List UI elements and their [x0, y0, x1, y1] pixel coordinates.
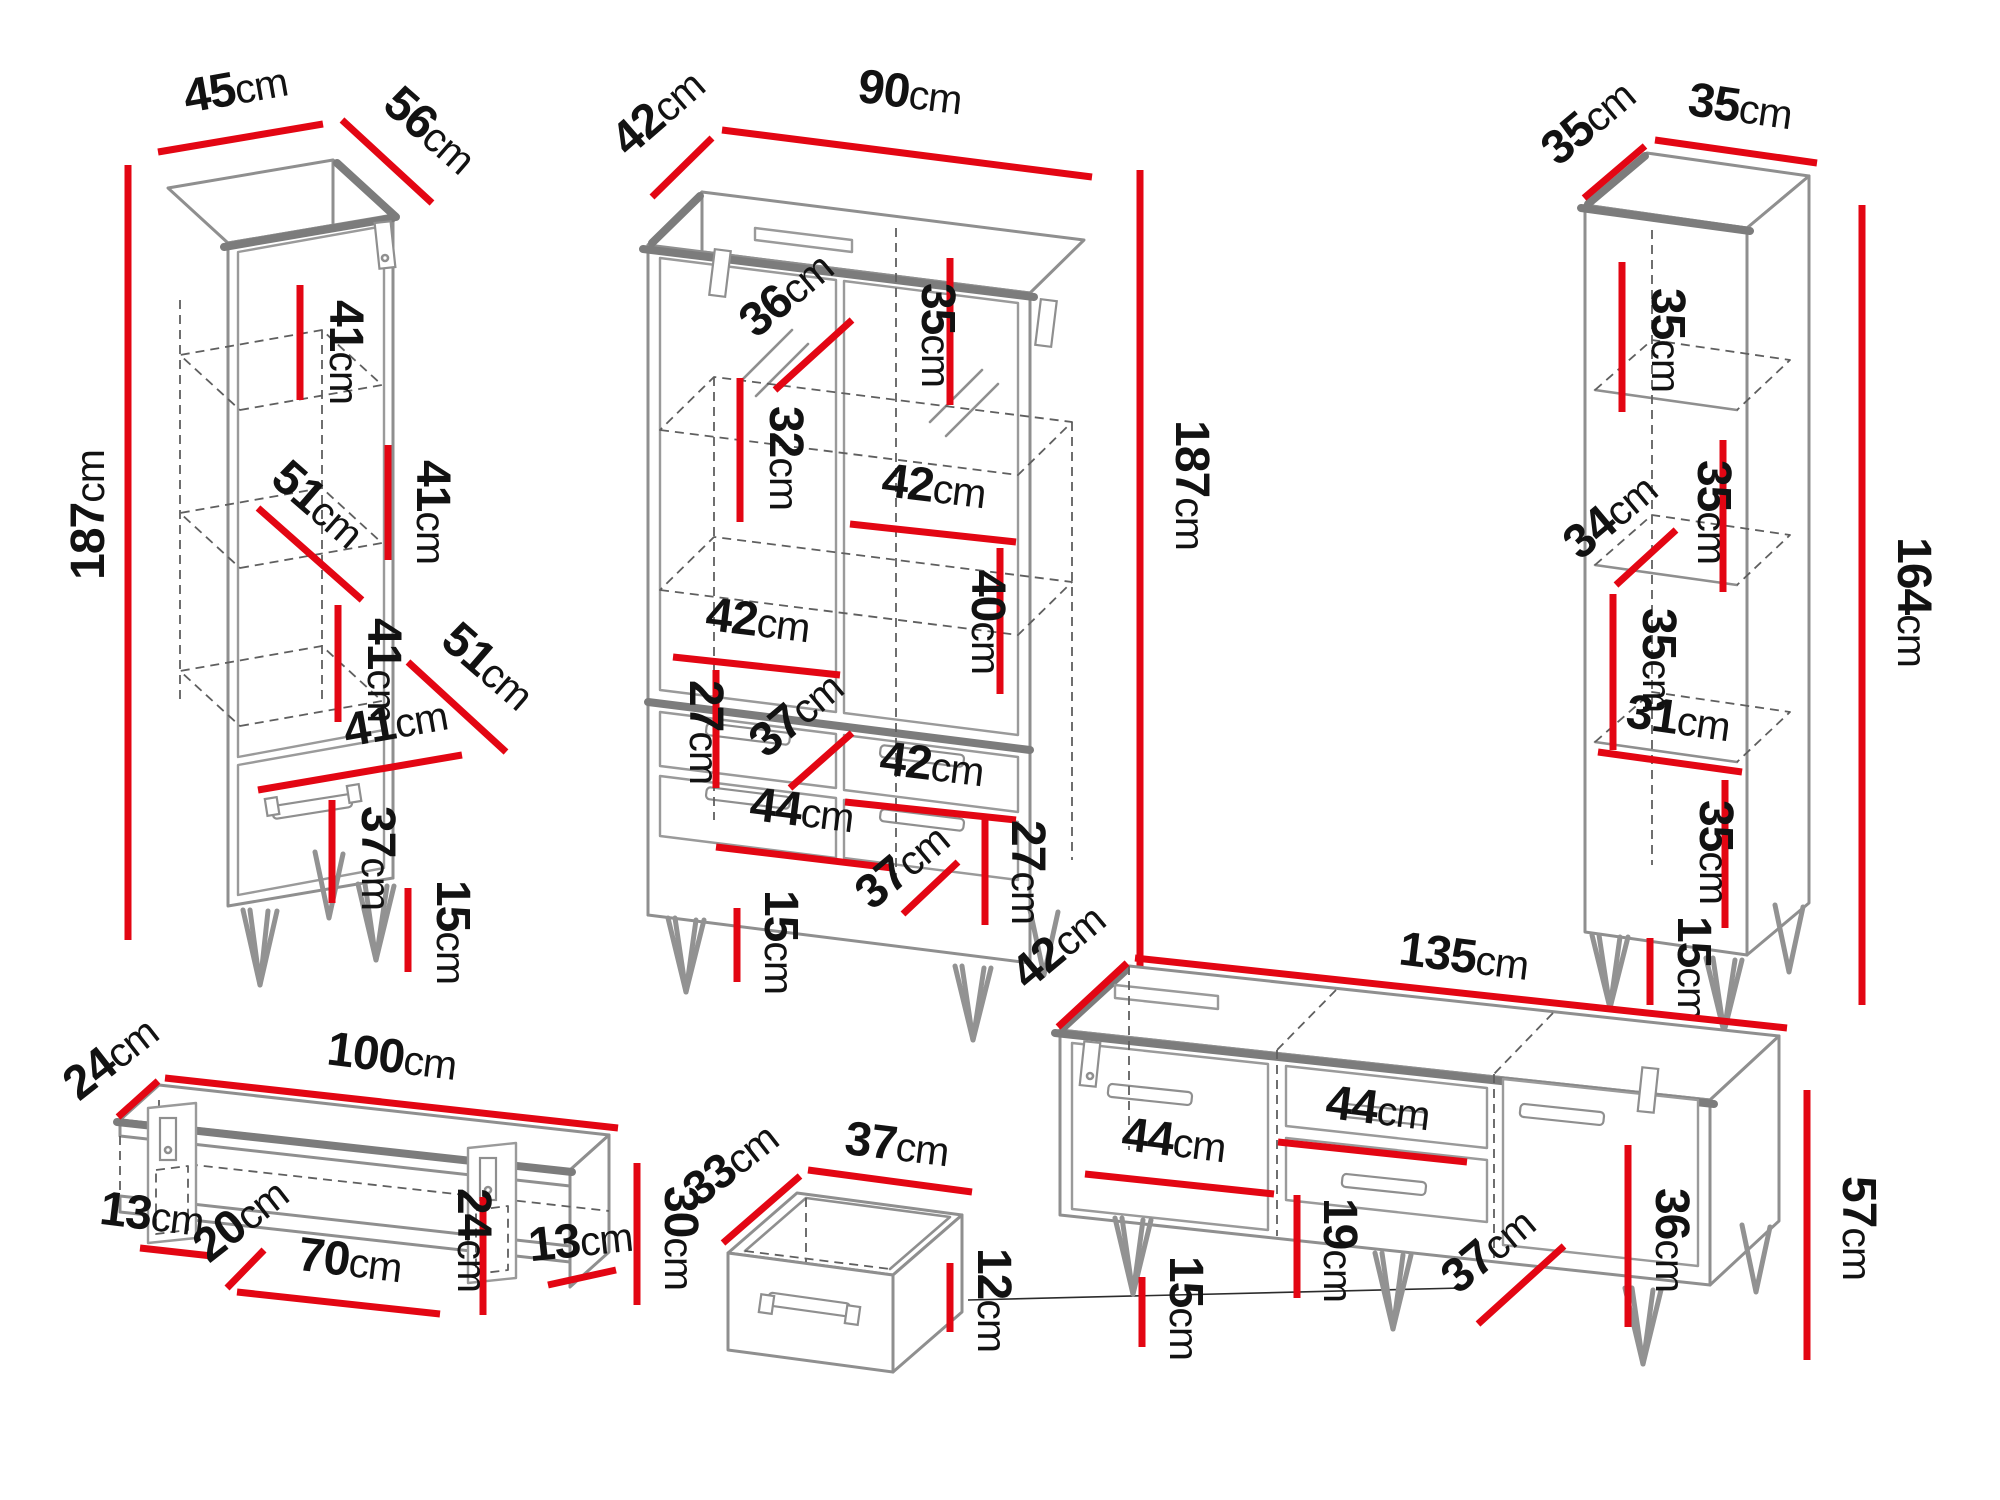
dim-comp4-label: 35cm [1689, 800, 1742, 904]
dim-width-line [158, 124, 323, 152]
hinge-bracket [375, 221, 396, 268]
display-cabinet: 42cm 90cm 187cm 36cm 35cm 32cm 42cm 40cm… [601, 58, 1218, 1040]
dim-legs-label: 15cm [426, 880, 479, 984]
shelf-unit: 35cm 35cm 164cm 35cm 34cm 35cm 35cm 31cm… [1531, 68, 1940, 1032]
diagram-canvas: 45cm 56cm 187cm 41cm 41cm 51cm 41cm 51cm… [0, 0, 2000, 1500]
dim-door-height-label: 40cm [961, 570, 1014, 674]
dim-height-label: 12cm [967, 1248, 1020, 1352]
wall-shelf: 24cm 100cm 13cm 20cm 70cm 24cm 13cm 30cm [53, 1005, 707, 1315]
dim-side-height-label: 36cm [1645, 1188, 1698, 1292]
dim-comp1-label: 41cm [319, 300, 372, 404]
dim-legs-label: 15cm [1667, 916, 1720, 1020]
dim-comp2-label: 35cm [1687, 460, 1740, 564]
dim-shelf-left-label: 32cm [759, 406, 812, 510]
tall-cabinet: 45cm 56cm 187cm 41cm 41cm 51cm 41cm 51cm… [62, 54, 545, 985]
dim-drawer-height-label: 19cm [1313, 1198, 1366, 1302]
dim-width-line [808, 1170, 972, 1192]
dim-width-label: 35cm [1685, 73, 1795, 140]
dim-width-line [722, 130, 1092, 177]
dim-height-label: 187cm [62, 450, 115, 580]
dim-width-label: 100cm [324, 1022, 459, 1090]
dim-shelf-right-label: 35cm [911, 283, 964, 387]
dim-drawer-right-label: 27cm [1001, 820, 1054, 924]
dim-inner-height-label: 24cm [447, 1188, 500, 1292]
dim-height-label: 164cm [1887, 537, 1940, 667]
dim-width-label: 37cm [842, 1112, 952, 1177]
dim-inner-width-line [237, 1292, 440, 1314]
dim-height-label: 57cm [1832, 1176, 1885, 1280]
dim-shelf-diag2-label: 51cm [432, 612, 545, 720]
dim-width-label: 45cm [179, 54, 291, 124]
dim-legs-label: 15cm [1159, 1256, 1212, 1360]
dim-legs-label: 15cm [754, 890, 807, 994]
dim-comp2-label: 41cm [406, 460, 459, 564]
tv-stand: 42cm 135cm 44cm 44cm 19cm 15cm 37cm 36cm… [1001, 892, 1885, 1364]
dim-width-label: 135cm [1396, 922, 1531, 990]
dim-height-label: 187cm [1165, 420, 1218, 550]
dim-width-label: 90cm [855, 60, 965, 125]
dim-end-right-label: 13cm [526, 1209, 635, 1273]
furniture-dimension-diagram: 45cm 56cm 187cm 41cm 41cm 51cm 41cm 51cm… [0, 0, 2000, 1500]
dim-comp1-label: 35cm [1641, 288, 1694, 392]
dim-drawer-left-label: 27cm [679, 680, 732, 784]
dim-depth-line [652, 138, 712, 197]
dim-drawer-label: 37cm [351, 806, 404, 910]
